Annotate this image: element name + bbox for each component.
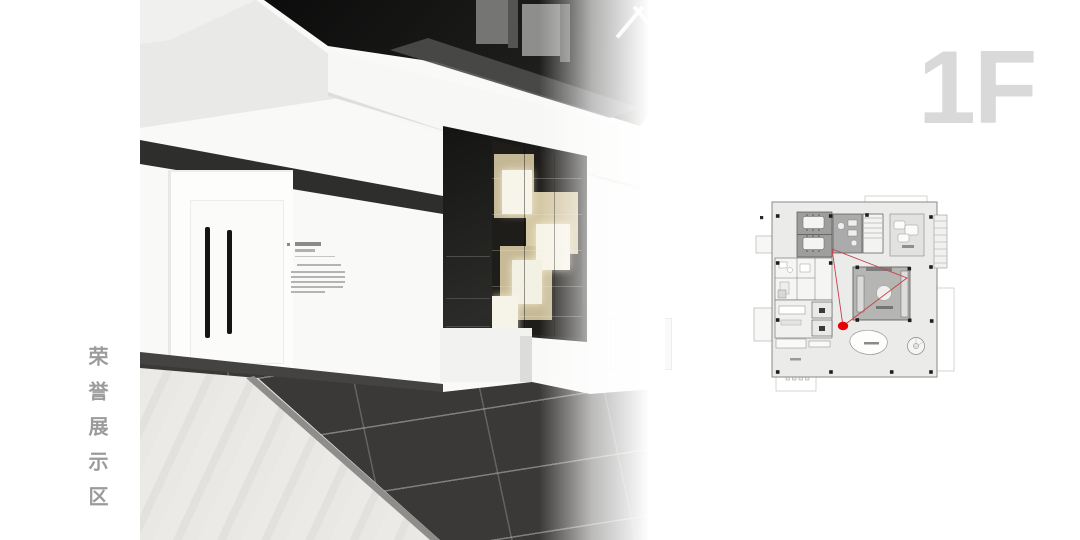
white-pedestal-side [520,336,532,382]
glass-shelf-line [492,214,582,215]
plan-stair-core [863,214,883,253]
hanging-cube-side [508,0,518,48]
glass-shelf-line [492,316,582,317]
plan-outer-column [760,216,763,219]
interior-rendering [140,0,665,540]
hanging-cube [522,4,560,56]
plaque-text-line [291,286,343,288]
plan-feature-label [864,342,879,345]
plan-spiral-stair [908,338,925,355]
shelf-divider [554,140,555,338]
plaque-subtitle-bar [295,249,315,252]
glass-shelf-line [446,326,490,327]
presentation-slide: 1F 荣誉展示区 [0,0,1080,540]
plan-left-porch [756,236,772,253]
plan-room-label [902,245,914,248]
glowing-display-cube [502,170,532,214]
plan-right-stairs [934,215,947,268]
shelf-divider [524,140,525,338]
plaque-title-bar [295,242,321,246]
plan-meeting-rooms [797,212,832,257]
glass-shelf-line [492,286,582,287]
plaque-text-line [297,264,341,266]
floor-plan [740,190,960,395]
hanging-cube [476,0,508,44]
plan-office-rooms [775,300,832,338]
wall-text-plaque [287,240,349,302]
plaque-text-line [291,271,345,273]
plaque-text-line [291,281,345,283]
plaque-text-line [291,276,345,278]
white-pedestal [440,328,532,382]
door-handle [205,227,210,338]
plan-right-deck [937,288,954,371]
hanging-cube-side [560,4,570,62]
glass-shelf-line [492,178,582,179]
camera-position-marker [838,322,848,330]
glass-shelf-line [492,250,582,251]
door-handle [227,230,232,334]
plaque-text-line [291,291,325,293]
white-low-cabinet [610,318,672,370]
plan-lounge-room [890,214,924,256]
glass-shelf-line [446,298,490,299]
plan-left-porch [754,308,772,341]
area-label-vertical: 荣誉展示区 [84,346,108,521]
display-shelf-inset [492,140,582,338]
plaque-bullet [287,243,290,246]
plan-lobby-label [790,358,801,361]
plan-utility-rooms [775,258,832,300]
floor-indicator-1f: 1F [918,36,1035,140]
plaque-divider [295,256,335,257]
plan-gray-room [833,214,862,253]
glass-shelf-line [446,256,490,257]
plan-exhibit-label [876,306,893,309]
